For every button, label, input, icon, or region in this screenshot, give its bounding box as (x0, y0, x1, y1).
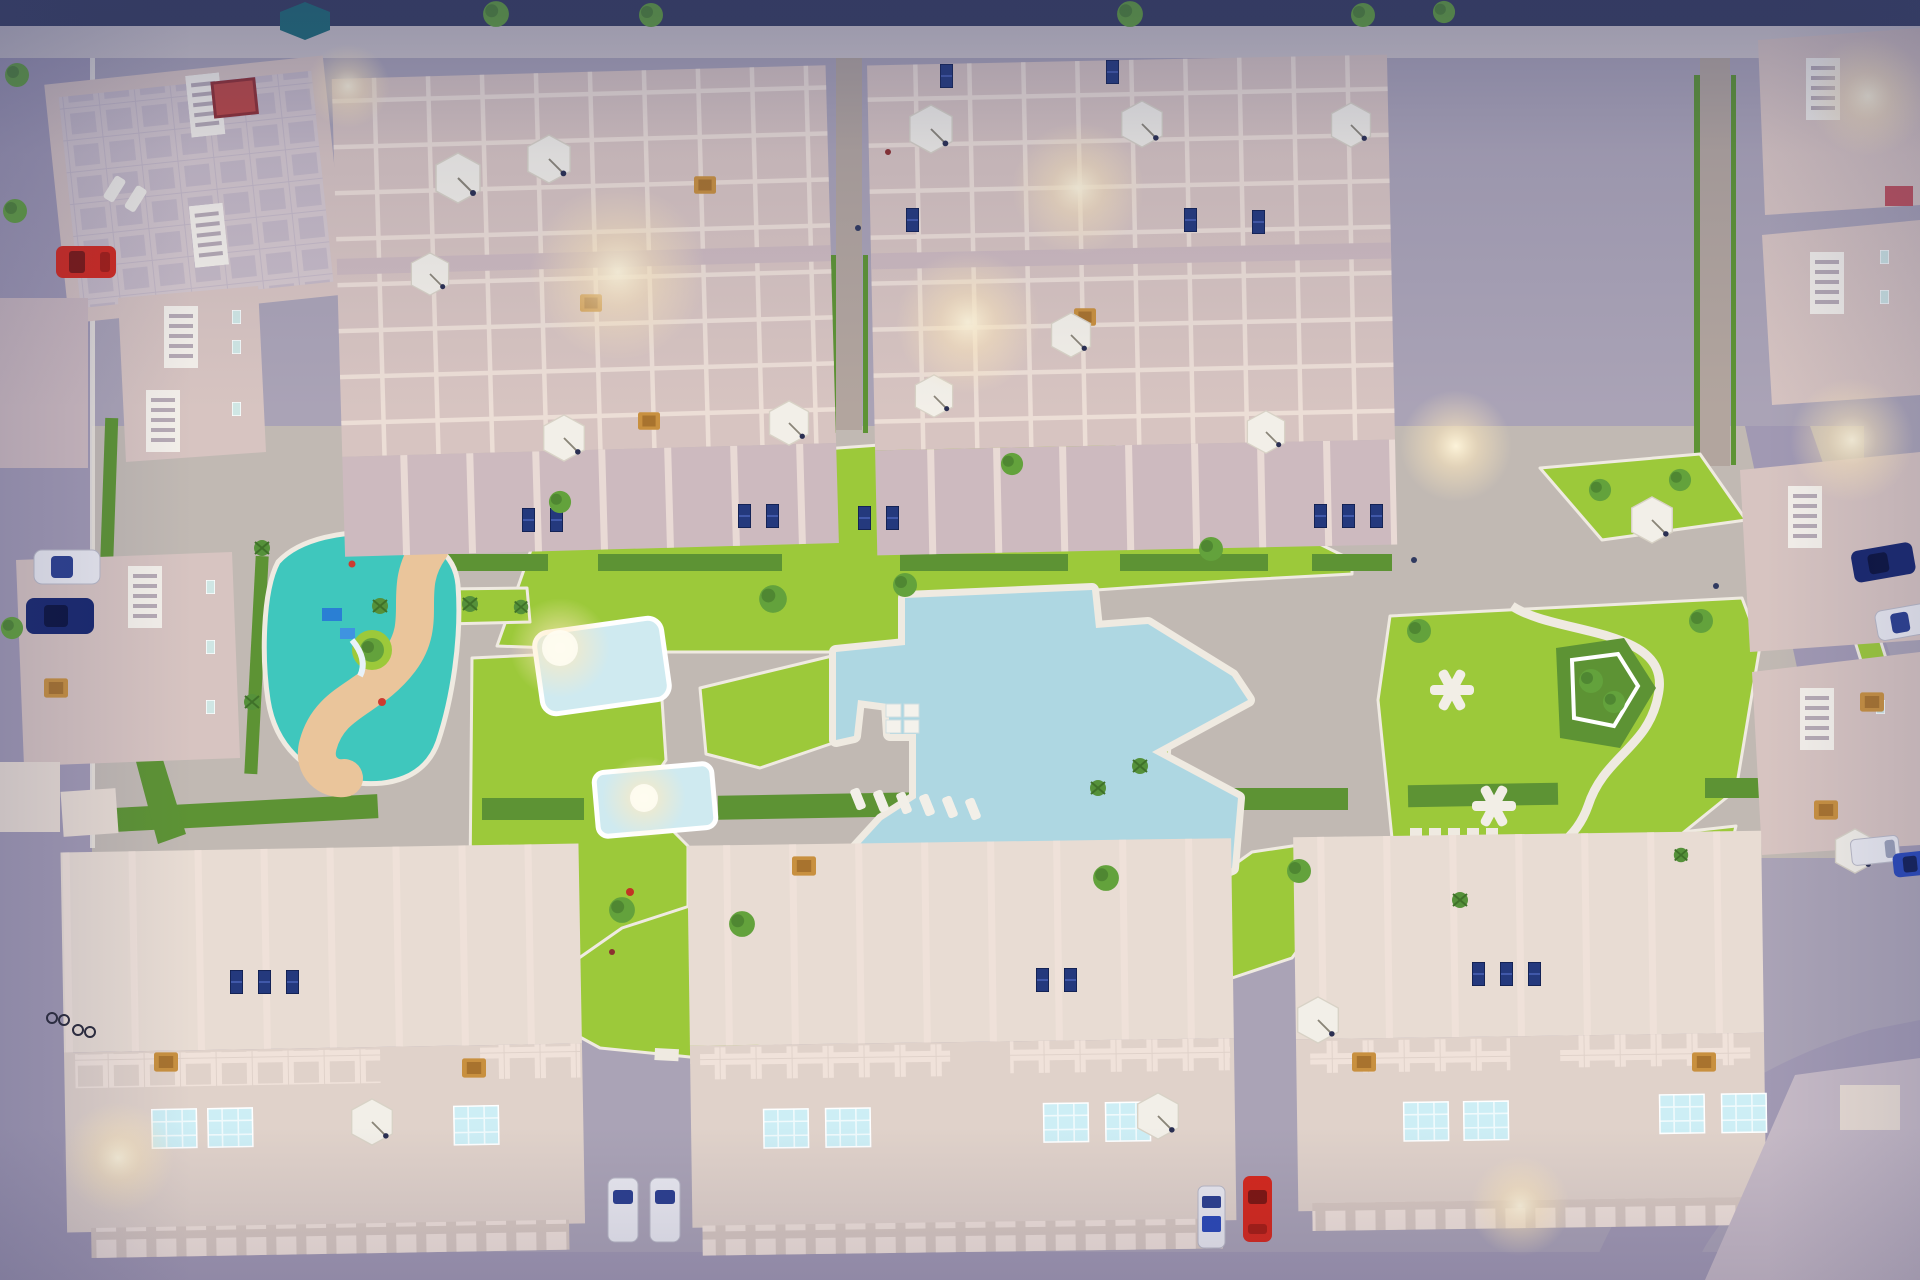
dusk-overlay-horizontal (0, 0, 1920, 1280)
aerial-render (0, 0, 1920, 1280)
scene-canvas (0, 0, 1920, 1280)
